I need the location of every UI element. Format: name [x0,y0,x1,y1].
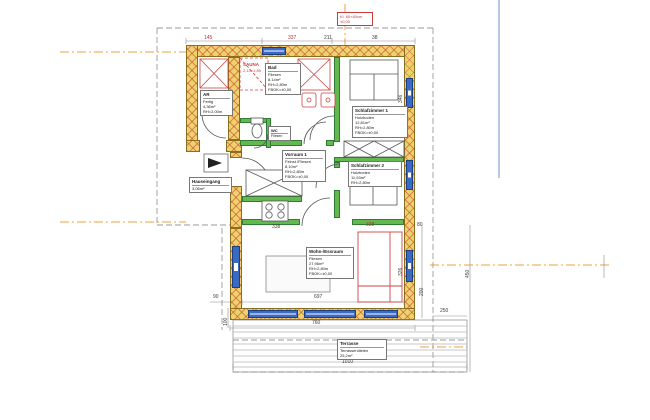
sofa-symbol [358,232,402,302]
dim-top-3: 211 [324,35,332,41]
room-label-hauseingang: Hauseingang 3,06m² [189,177,232,193]
room-label-ar: AR Fertig 4,36m² RH=2,00m [200,90,233,116]
axis-lines [60,4,612,347]
dim-right-3: 326 [398,268,404,276]
room-label-schlafzimmer1: Schlafzimmer 1 Holzboden 12,81m² RH=2,80… [352,106,408,138]
dim-sofa: 338 [366,222,374,228]
toilet-symbol [251,118,263,138]
dim-bottom-inner: 697 [314,294,322,300]
dim-terrace-h: 200 [419,288,425,296]
annotation-top-right: Kl. 60×60cm ±0,00 [337,12,373,26]
dim-right-1: 346 [398,95,404,103]
dim-terrace-w: 250 [440,308,448,314]
dim-left-1: 90 [213,294,219,300]
dim-top-4: 38 [372,35,378,41]
room-name-ar: AR [203,92,230,99]
room-label-wohnessraum: Wohn-/Essraum Fliesen 27,96m² RH=2,80m F… [306,247,354,279]
room-label-terrasse: Terrasse Terrassendielen 25,2m² [337,339,387,360]
room-label-bad: Bad Fliesen 8,14m² RH=2,80m FBOK=±0,00 [265,63,301,95]
entrance-arrow-icon [204,154,228,172]
room-label-wc: WC Fliesen [268,126,291,141]
dim-top-2: 337 [288,35,296,41]
plan-linework [0,0,650,420]
dim-kitchen: 338 [272,224,280,230]
dim-right-4: 80 [417,222,423,228]
cooktop-symbol [262,201,288,221]
dim-left-2: 100 [223,318,229,326]
room-label-schlafzimmer2: Schlafzimmer 2 Holzboden 11,93m² RH=2,80… [348,161,402,187]
dim-top-1: 145 [204,35,212,41]
floor-plan-canvas: AR Fertig 4,36m² RH=2,00m SAUNA 2,13×1,8… [0,0,650,420]
dim-bottom-outer: 760 [312,320,320,326]
room-label-vorraum: Vorraum 1 Feinst./Fliesen 8,10m² RH=2,80… [282,150,326,182]
dim-terrace-v: 450 [465,270,471,278]
washbasin-symbols [302,93,335,107]
